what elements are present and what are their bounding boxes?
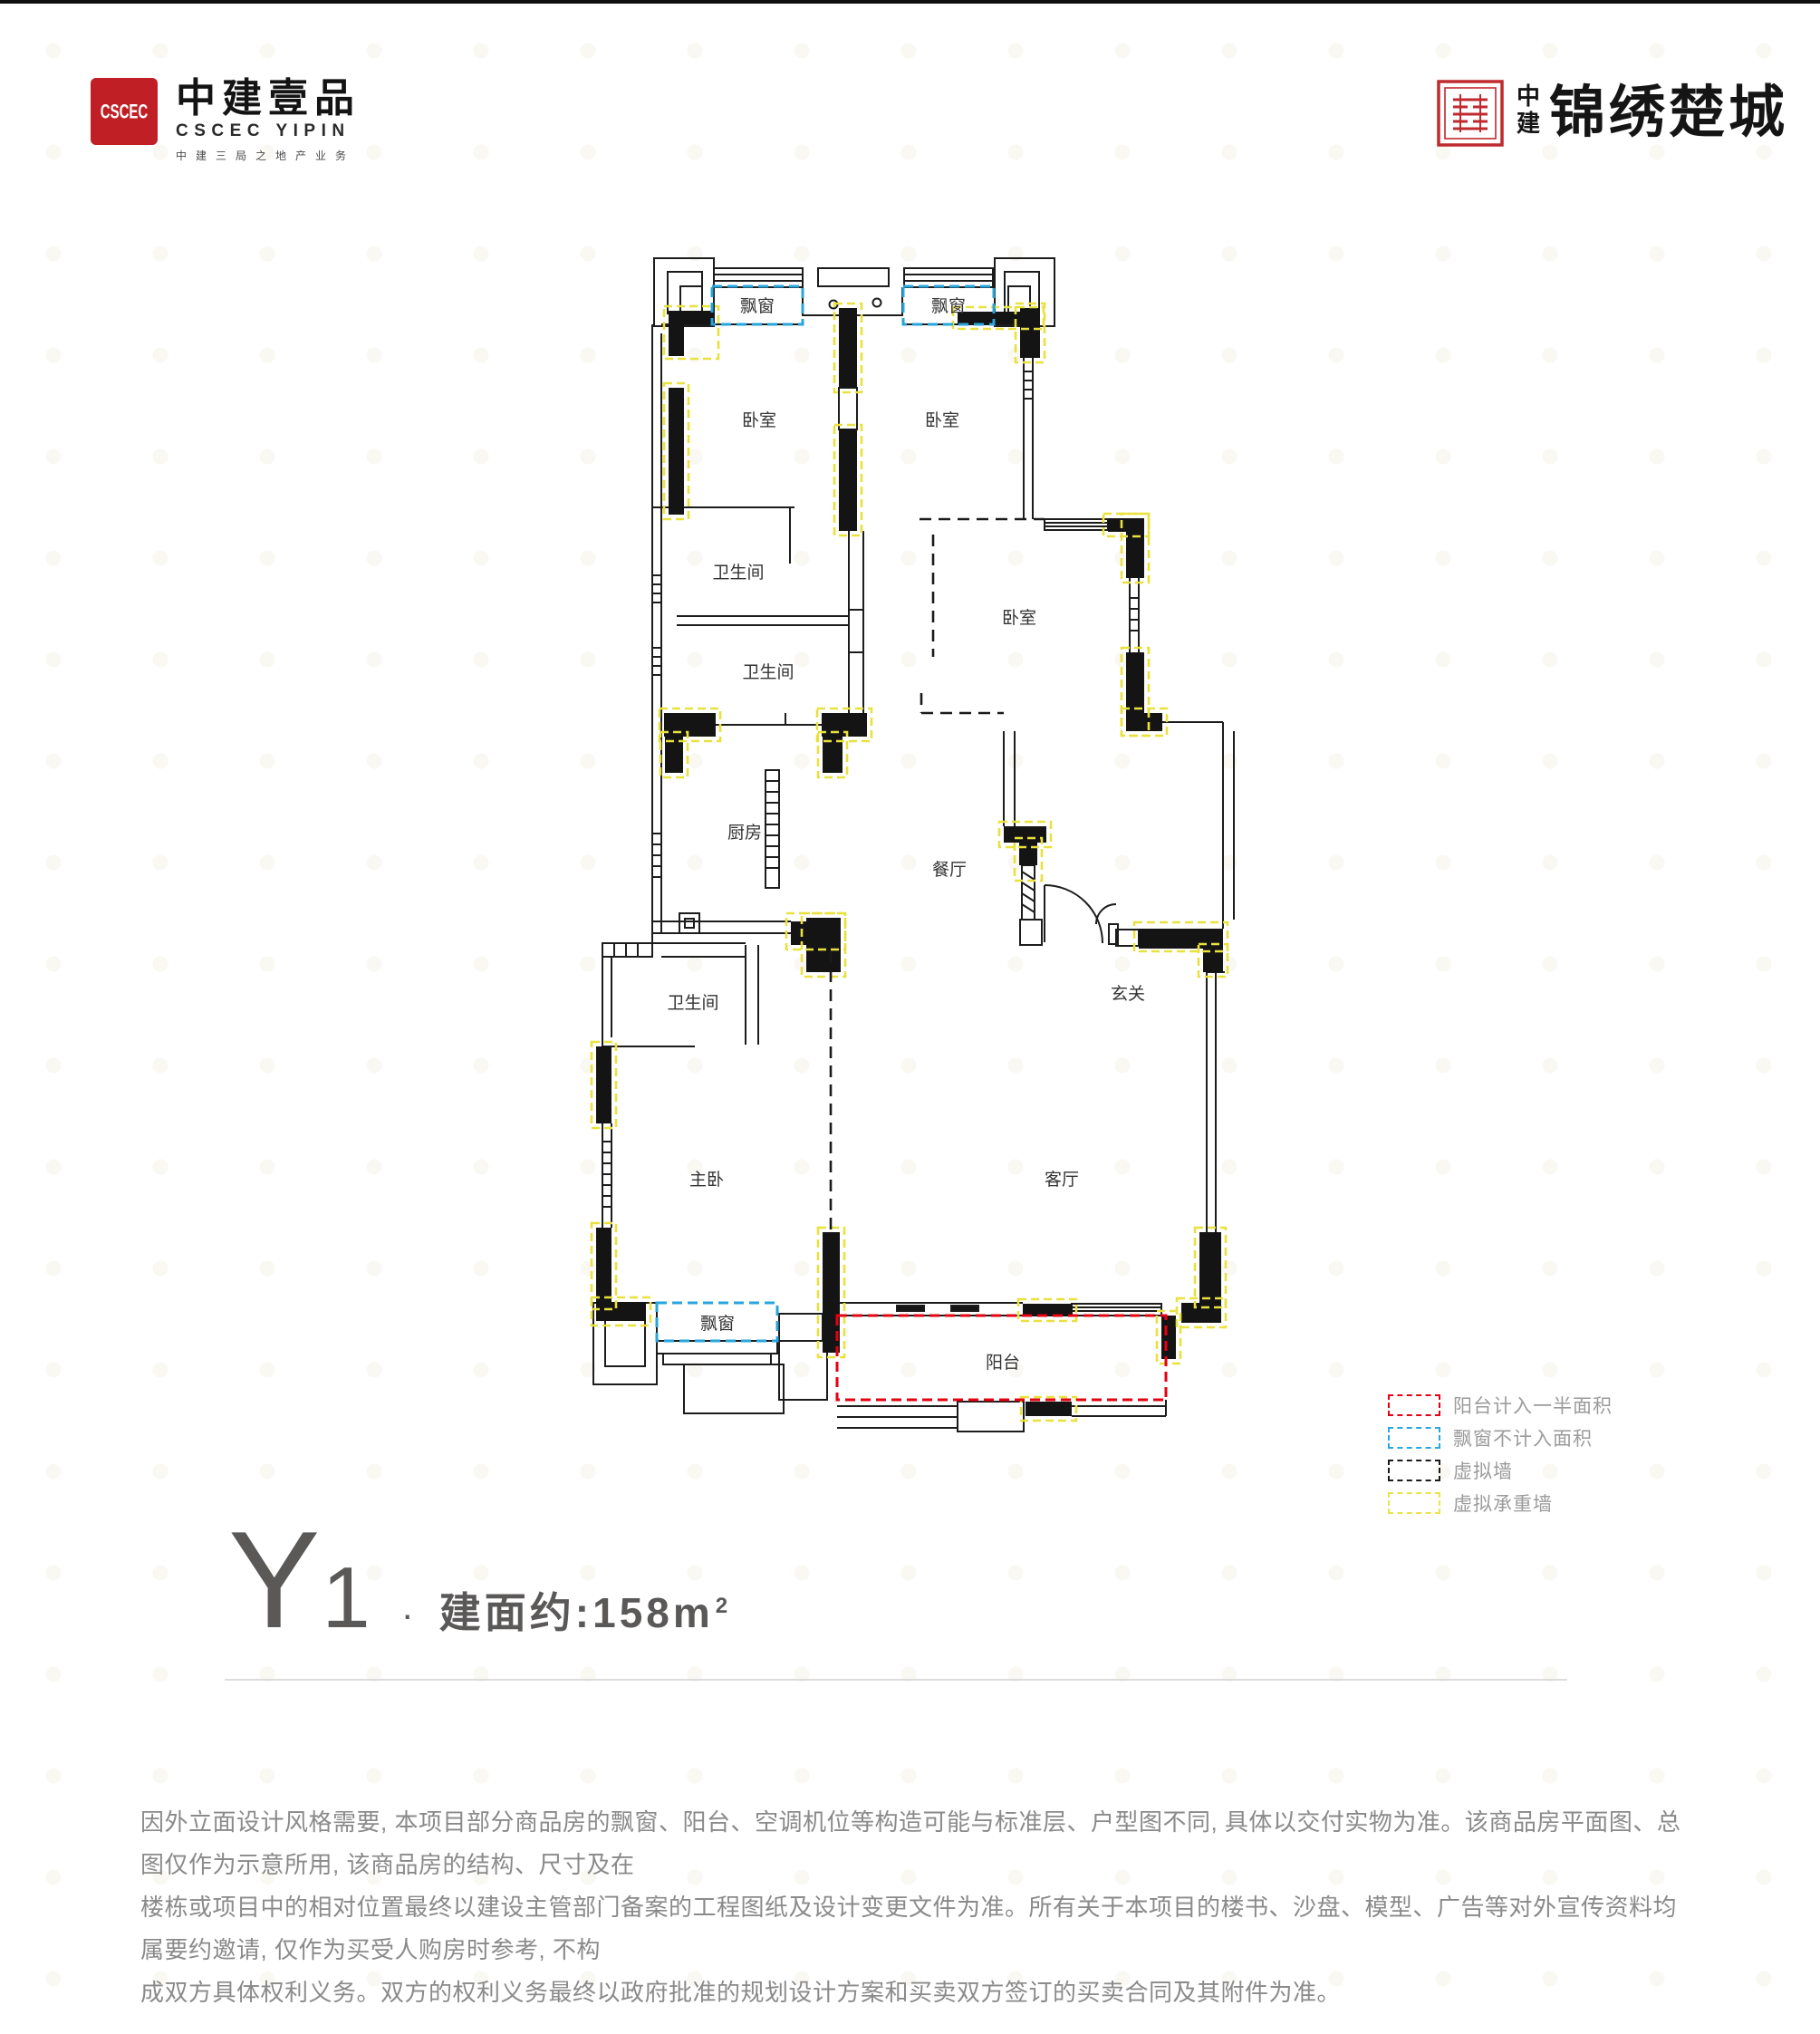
room-label-bathroom-2: 卫生间 (742, 662, 794, 682)
room-label-bedroom-2: 卧室 (925, 410, 959, 430)
room-label-baywindow-1: 飘窗 (740, 296, 775, 316)
legend-label: 虚拟承重墙 (1453, 1489, 1553, 1517)
area-exponent: 2 (716, 1594, 731, 1618)
brand-name-cn: 中建壹品 (176, 78, 361, 120)
logo-vertical-char-2: 建 (1517, 111, 1540, 138)
room-label-balcony: 阳台 (986, 1353, 1020, 1373)
structural-walls (596, 308, 1223, 1416)
area-unit: m (673, 1589, 714, 1636)
room-label-bathroom-1: 卫生间 (712, 563, 764, 583)
room-labels: 飘窗 飘窗 卧室 卧室 卫生间 卫生间 卧室 厨房 餐厅 卫生间 玄关 主卧 客… (667, 296, 1145, 1373)
room-label-baywindow-3: 飘窗 (700, 1314, 735, 1334)
unit-number: 1 (322, 1548, 370, 1648)
room-label-dining: 餐厅 (932, 860, 967, 880)
ornate-red-seal-icon (1437, 80, 1504, 147)
legend-swatch-virtual-bearing-wall-yellow-dashed (1388, 1492, 1440, 1514)
room-label-bedroom-1: 卧室 (742, 410, 776, 430)
legend-row-balcony: 阳台计入一半面积 (1388, 1393, 1613, 1418)
unit-area-text: 建面约:158m2 (439, 1580, 731, 1640)
project-name: 锦绣楚城 (1549, 80, 1788, 145)
room-label-bedroom-3: 卧室 (1002, 608, 1036, 628)
room-label-master-bedroom: 主卧 (689, 1170, 724, 1190)
logo-jinxiu-chucheng: 中 建 锦绣楚城 (1437, 80, 1788, 147)
room-label-foyer: 玄关 (1111, 984, 1145, 1004)
brand-tagline: 中建三局之地产业务 (176, 148, 361, 163)
page-top-rule (0, 0, 1820, 4)
disclaimer-line-3: 成双方具体权利义务。双方的权利义务最终以政府批准的规划设计方案和买卖双方签订的买… (140, 1971, 1699, 2014)
room-label-bathroom-3: 卫生间 (667, 993, 718, 1013)
logo-vertical-char-1: 中 (1517, 83, 1540, 111)
logo-cscec-yipin: CSCEC 中建壹品 CSCEC YIPIN 中建三局之地产业务 (91, 78, 361, 163)
cscec-red-seal-icon: CSCEC (91, 78, 158, 145)
area-value: 158 (592, 1589, 673, 1636)
room-label-living-room: 客厅 (1045, 1170, 1079, 1190)
virtual-bearing-wall-marks (592, 304, 1228, 1421)
brochure-page: CSCEC 中建壹品 CSCEC YIPIN 中建三局之地产业务 中 建 锦绣楚… (0, 0, 1820, 2034)
legend-label: 飘窗不计入面积 (1453, 1424, 1593, 1451)
legend-swatch-baywindow-blue-dashed (1388, 1427, 1440, 1449)
disclaimer-text: 因外立面设计风格需要, 本项目部分商品房的飘窗、阳台、空调机位等构造可能与标准层… (140, 1801, 1699, 2014)
floorplan-drawing: 飘窗 飘窗 卧室 卧室 卫生间 卫生间 卧室 厨房 餐厅 卫生间 玄关 主卧 客… (562, 236, 1250, 1441)
legend-label: 阳台计入一半面积 (1453, 1392, 1613, 1419)
unit-title: Y 1 · 建面约:158m2 (228, 1511, 731, 1649)
seal-letters: CSCEC (101, 100, 149, 123)
shaft-hatch (1022, 865, 1035, 920)
legend-row-virtual-wall: 虚拟墙 (1388, 1458, 1613, 1483)
brand-name-en: CSCEC YIPIN (176, 121, 361, 141)
room-label-baywindow-2: 飘窗 (931, 296, 966, 316)
legend-row-baywindow: 飘窗不计入面积 (1388, 1425, 1613, 1451)
unit-model: Y (228, 1511, 320, 1649)
title-separator-dot: · (401, 1593, 414, 1636)
disclaimer-line-1: 因外立面设计风格需要, 本项目部分商品房的飘窗、阳台、空调机位等构造可能与标准层… (140, 1801, 1699, 1886)
logo-left-text: 中建壹品 CSCEC YIPIN 中建三局之地产业务 (176, 78, 361, 163)
thin-walls (593, 258, 1234, 1432)
divider-rule (225, 1679, 1567, 1681)
legend-row-virtual-bearing-wall: 虚拟承重墙 (1388, 1490, 1613, 1516)
legend: 阳台计入一半面积 飘窗不计入面积 虚拟墙 虚拟承重墙 (1388, 1393, 1613, 1523)
area-prefix: 建面约: (439, 1589, 592, 1636)
legend-label: 虚拟墙 (1453, 1457, 1513, 1484)
legend-swatch-virtual-wall-black-dashed (1388, 1460, 1440, 1481)
logo-vertical-cn: 中 建 (1517, 83, 1540, 138)
room-label-kitchen: 厨房 (727, 823, 762, 843)
disclaimer-line-2: 楼栋或项目中的相对位置最终以建设主管部门备案的工程图纸及设计变更文件为准。所有关… (140, 1886, 1699, 1971)
legend-swatch-balcony-red-dashed (1388, 1394, 1440, 1416)
